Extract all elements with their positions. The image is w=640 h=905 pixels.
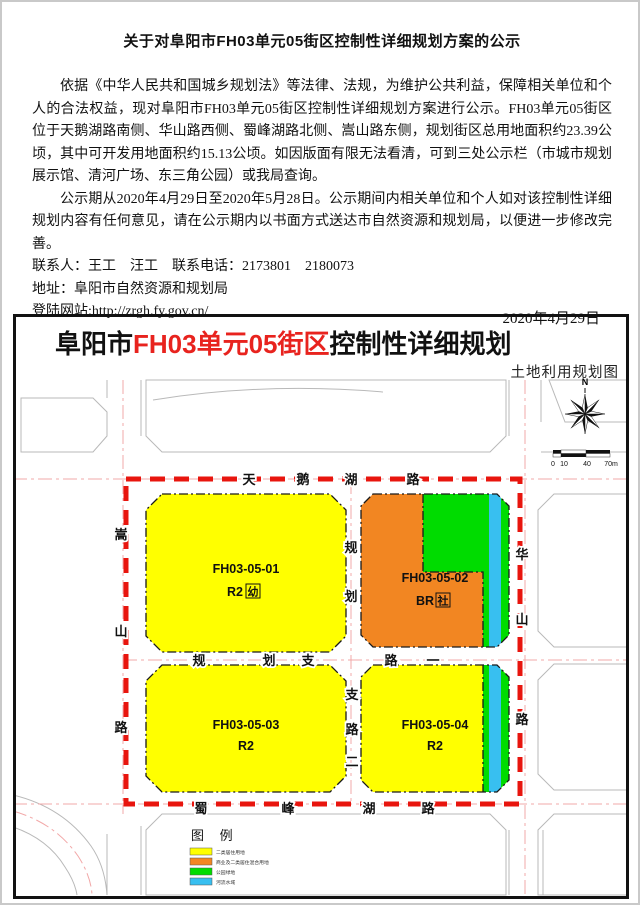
legend-swatch-mixed (190, 858, 212, 865)
legend-label-water: 河流水域 (216, 879, 235, 886)
parcel-4-code: R2 (427, 739, 443, 753)
road-label-zhilu1-5: 一 (426, 653, 439, 668)
road-label-zhilu1-4: 路 (384, 653, 398, 668)
road-label-tianehu-2: 鹅 (296, 472, 309, 487)
legend-label-mixed: 商业及二类居住混合用地 (216, 859, 269, 866)
parcel-FH03-05-01: FH03-05-01 R2 幼 (146, 494, 346, 652)
map-title-unit: FH03单元05街区 (133, 329, 330, 359)
road-label-zhilu2-top-2: 划 (344, 589, 357, 604)
road-label-tianehu-4: 路 (406, 472, 420, 487)
parcel-2-tag: 社 (437, 594, 449, 608)
legend-label-green: 公园绿地 (216, 869, 235, 876)
scale-tick-0: 0 (551, 461, 555, 468)
scale-bar: 0 10 40 70m (551, 450, 618, 468)
road-label-shufenghu-4: 路 (421, 801, 435, 816)
road-label-shufenghu-1: 蜀 (194, 801, 207, 816)
road-label-huashan-2: 山 (515, 612, 528, 627)
legend-title: 图 例 (191, 828, 239, 843)
road-label-huashan-3: 路 (515, 712, 529, 727)
parcel-4-id: FH03-05-04 (402, 718, 469, 732)
parcel-4-water-strip (489, 665, 501, 792)
parcel-4-green-strip-outer (501, 665, 509, 792)
notice-title: 关于对阜阳市FH03单元05街区控制性详细规划方案的公示 (42, 30, 602, 51)
road-label-songshan-2: 山 (114, 624, 127, 639)
parcel-1-code: R2 (227, 585, 243, 599)
road-label-tianehu-3: 湖 (344, 472, 357, 487)
map-title-city: 阜阳市 (55, 329, 133, 359)
scale-tick-10: 10 (560, 461, 568, 468)
scale-tick-70: 70m (604, 461, 618, 468)
parcel-FH03-05-02: FH03-05-02 BR 社 (361, 494, 509, 647)
parcel-2-green-strip (501, 494, 509, 647)
map-title: 阜阳市FH03单元05街区控制性详细规划 (55, 324, 512, 361)
parcel-2-water-strip (489, 494, 501, 647)
road-label-zhilu2-bot-3: 二 (345, 754, 358, 769)
road-label-shufenghu-2: 峰 (281, 801, 295, 816)
road-label-zhilu1-2: 划 (262, 653, 275, 668)
legend-swatch-green (190, 868, 212, 875)
parcel-1-id: FH03-05-01 (213, 562, 280, 576)
parcel-FH03-05-04: FH03-05-04 R2 (361, 665, 509, 792)
notice-page: 关于对阜阳市FH03单元05街区控制性详细规划方案的公示 依据《中华人民共和国城… (0, 0, 640, 905)
notice-paragraph-2: 公示期从2020年4月29日至2020年5月28日。公示期间内相关单位和个人如对… (32, 189, 612, 257)
address-line: 地址：阜阳市自然资源和规划局 (32, 279, 612, 302)
legend-swatch-water (190, 878, 212, 885)
parcel-1-tag: 幼 (248, 585, 259, 599)
road-label-zhilu2-bot-2: 路 (345, 722, 359, 737)
parcel-FH03-05-03: FH03-05-03 R2 (146, 665, 346, 792)
parcel-3-id: FH03-05-03 (213, 718, 280, 732)
road-label-tianehu-1: 天 (242, 472, 256, 487)
land-map-svg: FH03-05-01 R2 幼 FH03-05-02 BR (13, 314, 629, 899)
map-subtitle: 土地利用规划图 (511, 361, 620, 382)
parcel-3-code: R2 (238, 739, 254, 753)
contact-line: 联系人：王工 汪工 联系电话：2173801 2180073 (32, 256, 612, 279)
notice-text-section: 关于对阜阳市FH03单元05街区控制性详细规划方案的公示 依据《中华人民共和国城… (2, 2, 640, 324)
road-label-zhilu2-bot-1: 支 (344, 687, 359, 702)
road-label-zhilu2-top-1: 规 (344, 540, 357, 555)
land-use-map: 阜阳市FH03单元05街区控制性详细规划 土地利用规划图 (13, 314, 629, 899)
legend-label-residential: 二类居住用地 (216, 849, 245, 856)
road-label-huashan-1: 华 (515, 547, 528, 562)
road-label-zhilu1-3: 支 (300, 653, 315, 668)
notice-paragraph-1: 依据《中华人民共和国城乡规划法》等法律、法规，为维护公共利益，保障相关单位和个人… (32, 76, 612, 189)
road-label-songshan-3: 路 (114, 720, 128, 735)
legend-swatch-residential (190, 848, 212, 855)
map-title-tail: 控制性详细规划 (330, 329, 512, 359)
road-label-songshan-1: 嵩 (114, 527, 127, 542)
parcel-2-code: BR (416, 594, 434, 608)
road-label-shufenghu-3: 湖 (362, 801, 375, 816)
scale-tick-40: 40 (583, 461, 591, 468)
road-label-zhilu1-1: 规 (192, 653, 205, 668)
parcel-2-id: FH03-05-02 (402, 571, 469, 585)
parcel-4-green-strip-inner (483, 665, 489, 792)
